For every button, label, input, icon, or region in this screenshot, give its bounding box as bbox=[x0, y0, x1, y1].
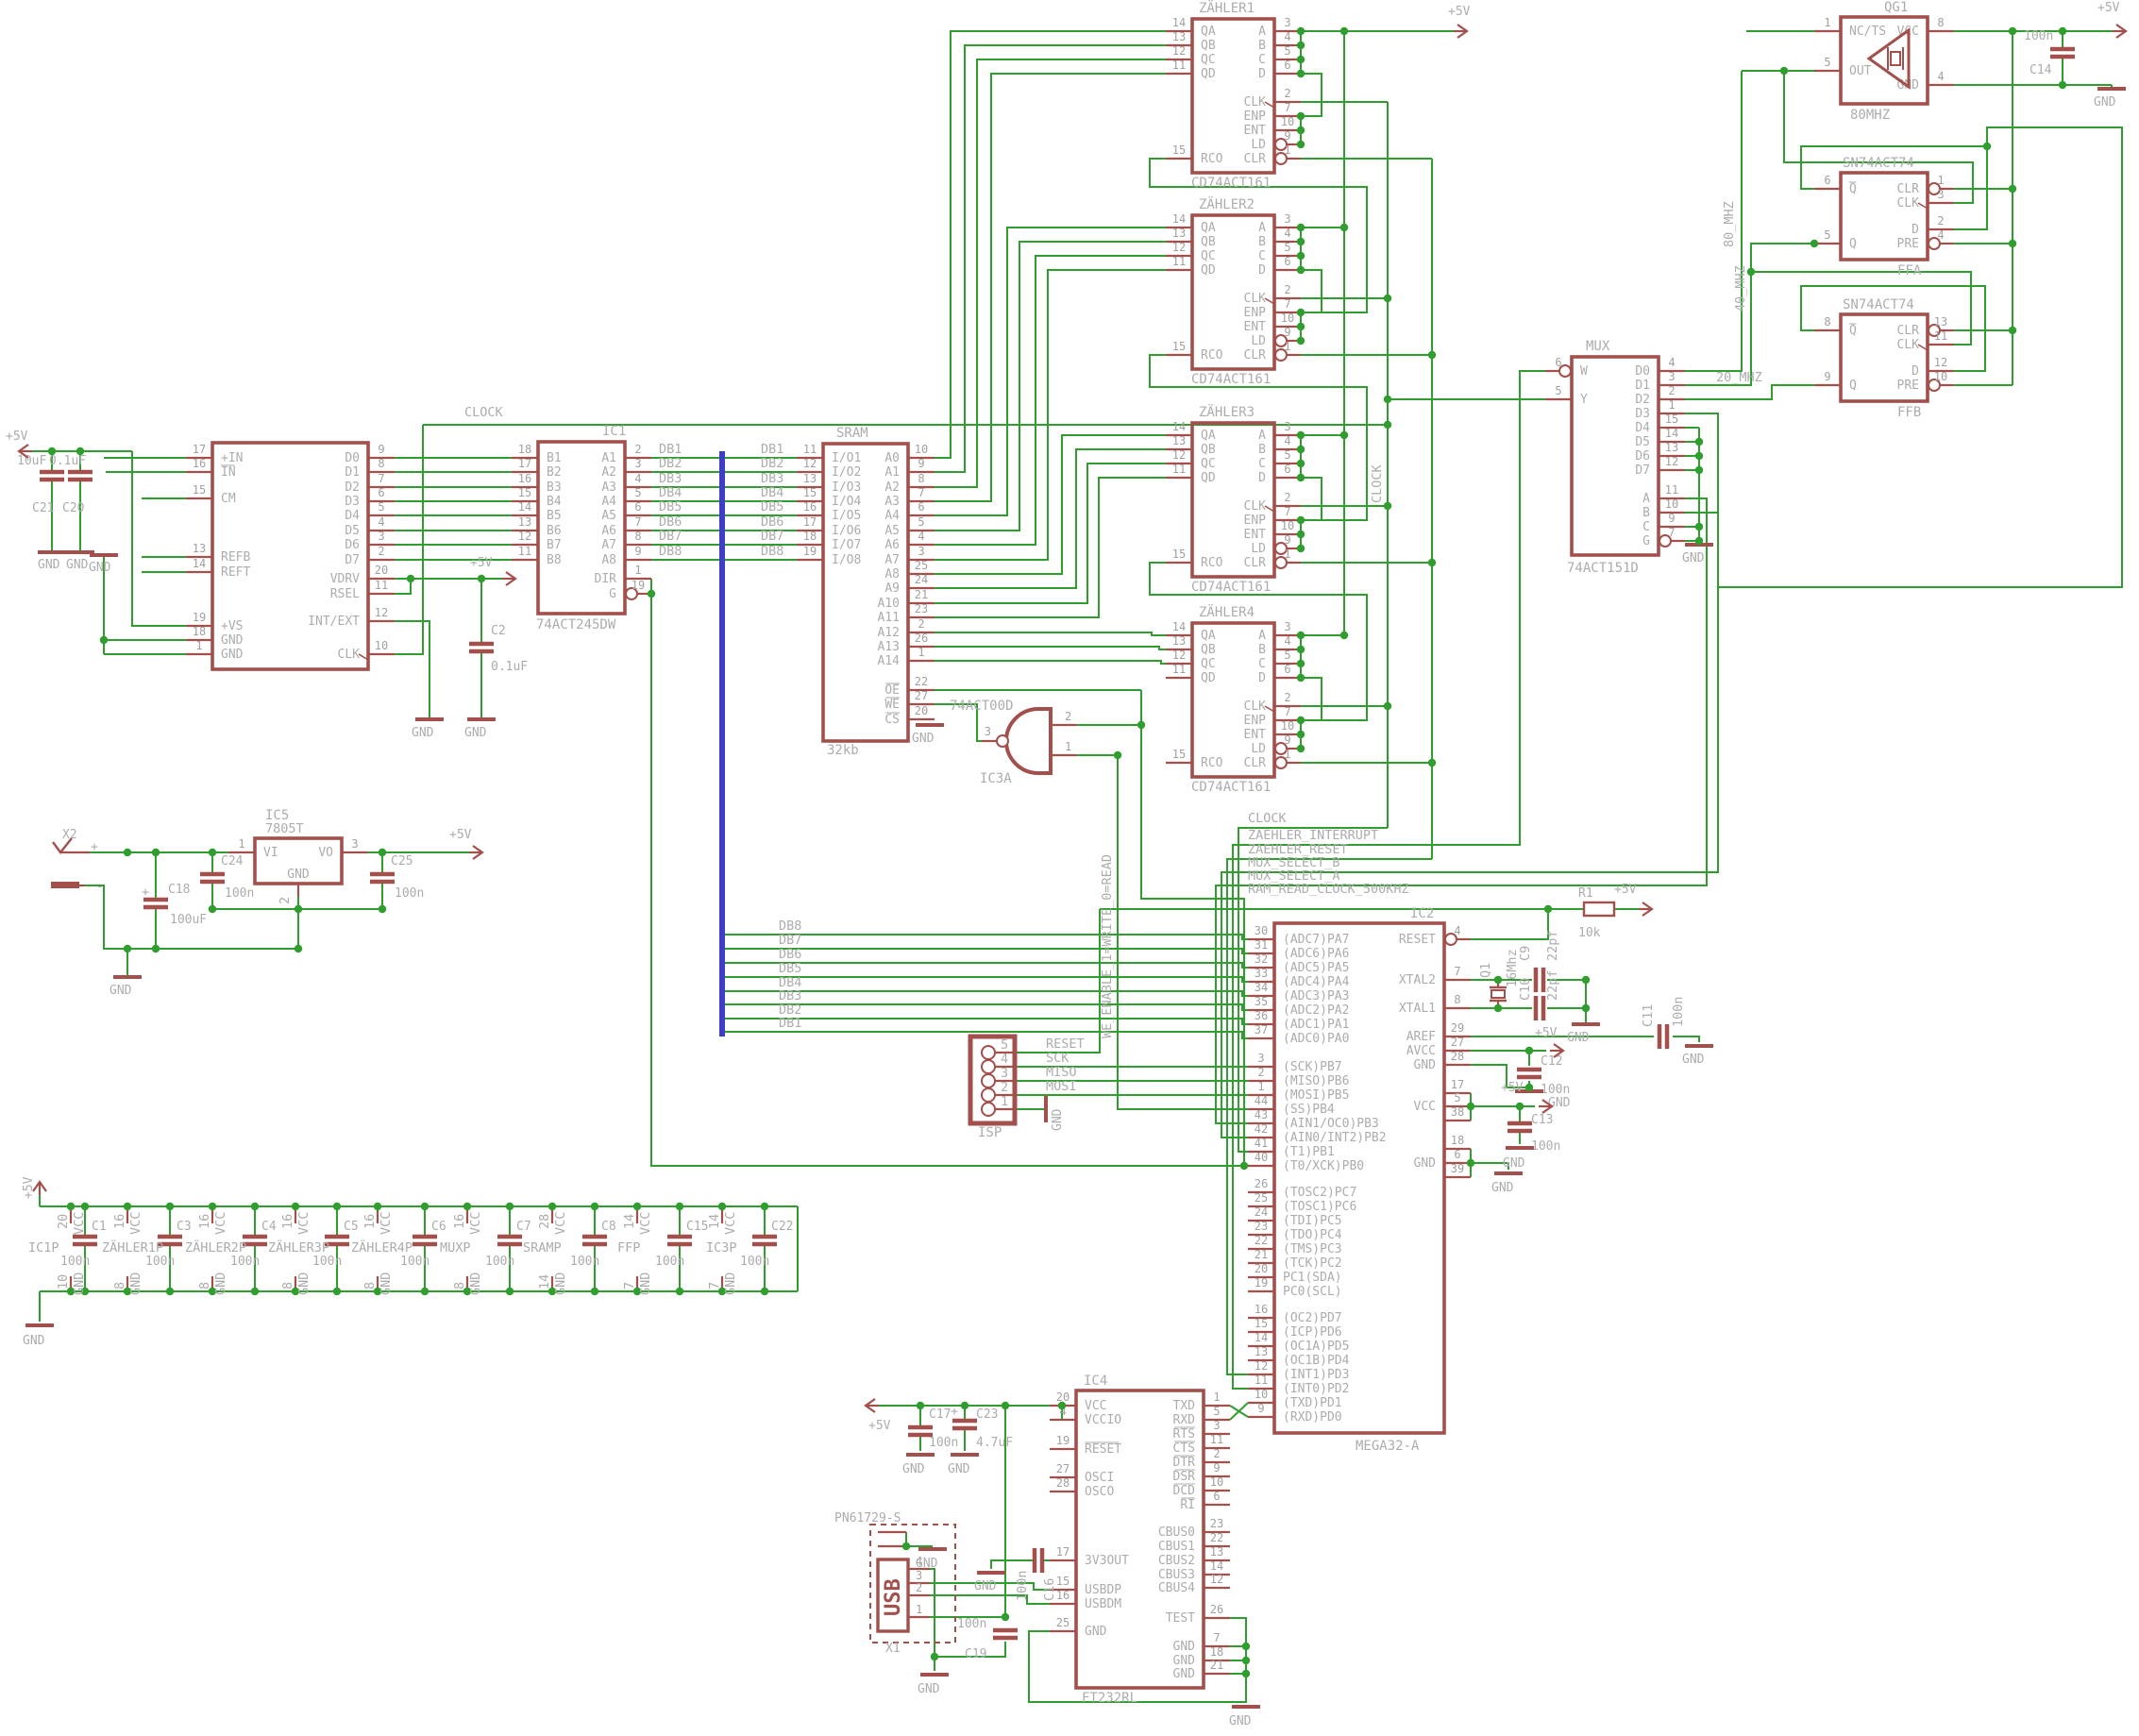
net-label: 7805T bbox=[265, 821, 304, 836]
pin-label: QD bbox=[1201, 67, 1216, 81]
pwr-label: +5V bbox=[6, 430, 28, 444]
pin-label: (ADC5)PA5 bbox=[1283, 961, 1349, 975]
nand-ref: IC3A bbox=[980, 771, 1012, 786]
pin-number: 30 bbox=[1255, 924, 1268, 937]
pin-label: D4 bbox=[1635, 421, 1650, 435]
net-label: DB5 bbox=[659, 499, 682, 514]
junction-dot bbox=[1297, 126, 1305, 134]
pin-number: 4 bbox=[1668, 356, 1675, 369]
pin-label: A5 bbox=[884, 524, 900, 538]
gnd-label: GND bbox=[1229, 1714, 1252, 1728]
net-label: GND bbox=[723, 1273, 738, 1295]
net-label: + bbox=[142, 885, 149, 900]
pin-number: 2 bbox=[1284, 283, 1290, 296]
pin-label: B7 bbox=[547, 538, 562, 552]
ic-title: SN74ACT74 bbox=[1843, 156, 1914, 171]
gnd-symbol: GND bbox=[2094, 89, 2126, 110]
pin-label: CLK bbox=[1244, 95, 1267, 110]
pin-number: 2 bbox=[1284, 491, 1290, 504]
pin-label: RI bbox=[1180, 1498, 1195, 1512]
pin-number: 16 bbox=[803, 500, 817, 514]
pin-number: 10 bbox=[375, 639, 388, 652]
pin-number: 22 bbox=[1255, 1234, 1268, 1247]
pin-label: GND bbox=[221, 633, 244, 648]
pin-number: 6 bbox=[1284, 663, 1290, 676]
pin-number: 18 bbox=[1451, 1134, 1464, 1147]
pin-label: QB bbox=[1201, 643, 1216, 657]
pwr-arrow: +5V bbox=[1614, 883, 1652, 916]
net-label: IC1P bbox=[28, 1240, 59, 1256]
pin-number: 10 bbox=[1281, 312, 1294, 325]
cap-name: C4 bbox=[261, 1220, 277, 1234]
pin-label: RTS bbox=[1173, 1427, 1195, 1441]
pin-label: CLR bbox=[1244, 348, 1267, 362]
pin-number: 13 bbox=[518, 515, 531, 529]
pin-number: 31 bbox=[1255, 938, 1268, 952]
pin-number: 11 bbox=[1172, 59, 1186, 72]
junction-dot bbox=[1297, 460, 1305, 467]
pin-number: 15 bbox=[193, 483, 206, 497]
pwr-label: +5V bbox=[868, 1419, 891, 1433]
junction-dot bbox=[379, 905, 386, 913]
pin-label: (SCK)PB7 bbox=[1283, 1060, 1342, 1074]
junction-dot bbox=[1384, 421, 1391, 429]
cap-value: 100n bbox=[400, 1255, 429, 1269]
pin-label: B bbox=[1258, 39, 1266, 53]
pin-label: D bbox=[1912, 223, 1919, 237]
gnd-symbol: GND bbox=[23, 1325, 54, 1348]
pin-label: QD bbox=[1201, 263, 1216, 278]
pin-number: 21 bbox=[915, 588, 928, 601]
pwr-arrow: +5V bbox=[449, 828, 482, 859]
pin-label: D3 bbox=[1635, 407, 1650, 421]
net-label: VCC bbox=[213, 1212, 228, 1235]
pin-number: 7 bbox=[1284, 297, 1290, 311]
net-label: 22pf bbox=[1545, 930, 1560, 961]
junction-dot bbox=[931, 1653, 938, 1660]
pin-number: 13 bbox=[803, 472, 817, 485]
net-label: 8 bbox=[197, 1282, 212, 1289]
junction-dot bbox=[506, 1288, 514, 1295]
ic-qg1: QG180MHZ1NC/TS5OUT8VCC4GND bbox=[1814, 0, 1954, 123]
junction-dot bbox=[548, 1203, 556, 1210]
pin-number: 6 bbox=[1824, 174, 1830, 187]
cap-name: C6 bbox=[431, 1220, 446, 1234]
pin-label: GND bbox=[1173, 1654, 1196, 1668]
net-label: 1 bbox=[1001, 1094, 1008, 1109]
net-label: ZÄHLER3P bbox=[268, 1239, 329, 1256]
cap-C22: C22100n bbox=[740, 1220, 793, 1269]
pin-number: 3 bbox=[916, 1569, 922, 1582]
pin-label: (MOSI)PB5 bbox=[1283, 1088, 1349, 1103]
cap-C19: C19100n bbox=[957, 1617, 1018, 1661]
junction-dot bbox=[1695, 537, 1703, 545]
junction-dot bbox=[1297, 632, 1305, 639]
net-label: GND bbox=[213, 1273, 228, 1295]
cap-value: 100n bbox=[1541, 1083, 1570, 1097]
pin-label: D6 bbox=[345, 538, 360, 552]
pin-number: 12 bbox=[518, 530, 531, 543]
pin-label: CBUS1 bbox=[1158, 1540, 1195, 1554]
pin-label: I/O2 bbox=[832, 465, 861, 480]
pin-number: 16 bbox=[1255, 1303, 1268, 1316]
pin-number: 12 bbox=[1172, 44, 1186, 58]
junction-dot bbox=[81, 1203, 89, 1210]
net-label: GND bbox=[638, 1273, 653, 1295]
pin-number: 10 bbox=[1210, 1475, 1223, 1489]
wire bbox=[1784, 71, 1973, 203]
gnd-label: GND bbox=[38, 558, 60, 572]
pin-number: 5 bbox=[1824, 56, 1830, 69]
junction-dot bbox=[374, 1203, 381, 1210]
junction-dot bbox=[124, 945, 131, 952]
junction-dot bbox=[292, 1203, 299, 1210]
pin-label: C bbox=[1258, 53, 1266, 67]
gnd-symbol: GND bbox=[902, 1455, 935, 1476]
pin-label: CLK bbox=[1244, 699, 1267, 714]
pin-number: 4 bbox=[1454, 924, 1460, 937]
cap-value: 100n bbox=[740, 1255, 769, 1269]
cap-value: 100n bbox=[145, 1255, 175, 1269]
pin-number: 8 bbox=[378, 457, 384, 470]
net-label: DB6 bbox=[659, 514, 682, 530]
pin-number: 5 bbox=[1555, 384, 1561, 397]
junction-dot bbox=[1242, 1643, 1250, 1650]
junction-dot bbox=[1297, 531, 1305, 538]
cap-name: C19 bbox=[965, 1647, 986, 1661]
junction-dot bbox=[1242, 1670, 1250, 1677]
cap-C25: C25100n bbox=[370, 854, 424, 901]
pin-number: 1 bbox=[1284, 548, 1290, 561]
net-label: C16 bbox=[1042, 1578, 1057, 1601]
pwr-label: +5V bbox=[1501, 1081, 1524, 1095]
pin-label: D5 bbox=[345, 524, 360, 538]
pin-number: 11 bbox=[803, 443, 817, 456]
pin-label: D bbox=[1258, 471, 1266, 485]
junction-dot bbox=[1747, 268, 1755, 276]
pin-label: D2 bbox=[1635, 393, 1650, 407]
cap-name: C20 bbox=[62, 501, 84, 515]
pin-label: (MISO)PB6 bbox=[1283, 1074, 1349, 1088]
cap-C16 bbox=[1035, 1548, 1042, 1573]
junction-dot bbox=[761, 1203, 768, 1210]
junction-dot bbox=[1516, 1103, 1524, 1110]
ic-ffb: SN74ACT74FFB8Q9Q13CLR11CLK12D10PRE bbox=[1814, 297, 1954, 420]
pin-number: 2 bbox=[1257, 1066, 1264, 1079]
pin-number: 14 bbox=[1255, 1331, 1268, 1344]
nand-ic3a: 74ACT00DIC3A321 bbox=[950, 699, 1077, 786]
junction-dot bbox=[1297, 309, 1305, 316]
pin-label: LD bbox=[1251, 542, 1266, 556]
pin-number: 15 bbox=[1172, 143, 1186, 157]
junction-dot bbox=[1297, 42, 1305, 49]
net-label: VCC bbox=[468, 1212, 483, 1235]
net-label: CLOCK bbox=[464, 405, 504, 420]
pin-number: 3 bbox=[1284, 212, 1290, 226]
pin-number: 19 bbox=[632, 579, 645, 592]
wire bbox=[395, 425, 423, 654]
cap-name: C2 bbox=[491, 624, 506, 638]
pin-label: USBDP bbox=[1085, 1583, 1121, 1597]
pin-label: IN bbox=[221, 465, 236, 480]
pin-label: GND bbox=[1414, 1156, 1437, 1171]
ic-subtitle: 74ACT245DW bbox=[536, 617, 616, 632]
pin-label: B bbox=[1258, 235, 1266, 249]
pin-number: 12 bbox=[375, 606, 388, 619]
pin-label: I/O6 bbox=[832, 524, 861, 538]
pin-label: LD bbox=[1251, 334, 1266, 348]
junction-dot bbox=[961, 1402, 968, 1409]
pin-number: 7 bbox=[918, 486, 924, 499]
pin-number: 6 bbox=[1284, 463, 1290, 476]
dc-jack: X2+- bbox=[51, 828, 104, 894]
pin-number: 13 bbox=[1172, 634, 1186, 648]
pin-label: (ADC0)PA0 bbox=[1283, 1032, 1349, 1046]
ic-title: ZÄHLER3 bbox=[1199, 403, 1255, 420]
pin-number: 16 bbox=[193, 457, 206, 470]
pin-label: WE bbox=[884, 698, 900, 712]
pin-number: 4 bbox=[378, 515, 384, 529]
pin-number: 15 bbox=[1056, 1575, 1069, 1588]
pin-number: 13 bbox=[1665, 441, 1678, 454]
pin-number: 5 bbox=[1454, 1091, 1460, 1104]
pin-label: D0 bbox=[345, 451, 360, 465]
net-labels: CLOCKCLOCKDB1DB2DB3DB4DB5DB6DB7DB8DB1DB2… bbox=[28, 201, 1762, 1601]
pin-number: 11 bbox=[518, 545, 531, 558]
junction-dot bbox=[1297, 674, 1305, 682]
pin-number: 25 bbox=[915, 559, 928, 572]
pin-number: 3 bbox=[1937, 188, 1944, 201]
net-label: 20_MHZ bbox=[1716, 370, 1762, 385]
pin-number: 5 bbox=[1824, 228, 1830, 242]
wire bbox=[1230, 1403, 1248, 1420]
junction-dot bbox=[676, 1203, 683, 1210]
gnd-label: GND bbox=[948, 1462, 970, 1476]
gnd-symbol: GND bbox=[912, 725, 944, 746]
pin-label: (ADC2)PA2 bbox=[1283, 1003, 1349, 1018]
ic-title: SRAM bbox=[836, 426, 868, 441]
cap-name: C24 bbox=[221, 854, 244, 868]
pin-label: Q bbox=[1849, 379, 1857, 393]
cap-value: 0.1uF bbox=[491, 660, 528, 674]
pin-label: GND bbox=[1414, 1058, 1437, 1072]
pin-label: (ADC1)PA1 bbox=[1283, 1018, 1349, 1032]
pin-number: 35 bbox=[1255, 995, 1268, 1008]
schematic-canvas: 17+IN16IN15CM13REFB14REFT19+VS18GND1GND9… bbox=[0, 0, 2139, 1736]
pin-number: 9 bbox=[1284, 326, 1290, 339]
pin-number: 13 bbox=[1210, 1545, 1223, 1559]
pin-number: 2 bbox=[1668, 384, 1675, 397]
net-label: DB5 bbox=[779, 961, 801, 976]
pin-label: B bbox=[1258, 643, 1266, 657]
pin-label: (ADC7)PA7 bbox=[1283, 933, 1349, 947]
junction-dot bbox=[1002, 1402, 1009, 1409]
pin-number: 3 bbox=[1284, 420, 1290, 433]
junction-dot bbox=[124, 1203, 131, 1210]
net-label: IC3P bbox=[706, 1240, 737, 1256]
net-label: 8 bbox=[452, 1282, 467, 1289]
wire bbox=[1301, 678, 1322, 720]
net-label: RAM_READ_CLOCK_500KHZ bbox=[1248, 882, 1409, 897]
pin-label: RCO bbox=[1201, 756, 1223, 770]
pin-number: 27 bbox=[915, 689, 928, 702]
junction-dot bbox=[1340, 632, 1348, 639]
wire bbox=[935, 463, 1166, 603]
ic-title: MUX bbox=[1586, 339, 1610, 354]
pin-label: A2 bbox=[601, 465, 616, 480]
pin-label: A4 bbox=[884, 509, 900, 523]
pin-number: 1 bbox=[916, 1603, 922, 1616]
junction-dot bbox=[1297, 112, 1305, 120]
wires bbox=[19, 31, 2122, 1703]
pin-number: 1 bbox=[1284, 340, 1290, 353]
junction-dot bbox=[76, 447, 84, 455]
pin-number: 26 bbox=[915, 632, 928, 645]
junction-dot bbox=[421, 1288, 429, 1295]
pin-label: CBUS2 bbox=[1158, 1554, 1195, 1568]
junction-dot bbox=[1240, 1162, 1248, 1170]
pin-label: QB bbox=[1201, 235, 1216, 249]
pin-number: 44 bbox=[1255, 1094, 1268, 1107]
pin-label: CLK bbox=[1244, 292, 1267, 306]
junction-dot bbox=[1297, 252, 1305, 260]
pin-label: A2 bbox=[884, 480, 900, 495]
pin-number: 3 bbox=[1257, 1052, 1264, 1065]
gnd-symbol: GND bbox=[412, 719, 444, 740]
junction-dot bbox=[1340, 27, 1348, 35]
junction-dot bbox=[166, 1288, 174, 1295]
pin-label: D1 bbox=[345, 465, 360, 480]
pin-number: 12 bbox=[1934, 356, 1947, 369]
wire bbox=[132, 451, 186, 626]
pin-number: 17 bbox=[803, 515, 817, 529]
pin-number: 2 bbox=[378, 545, 384, 558]
pin-label: D0 bbox=[1635, 364, 1650, 379]
junction-dot bbox=[1297, 56, 1305, 63]
pin-label: (ADC4)PA4 bbox=[1283, 975, 1350, 989]
net-label: ZÄHLER1P bbox=[102, 1239, 163, 1256]
junction-dot bbox=[463, 1203, 471, 1210]
pin-number: 34 bbox=[1255, 981, 1268, 994]
net-label: DB3 bbox=[761, 471, 783, 486]
pin-label: (SS)PB4 bbox=[1283, 1103, 1335, 1117]
cap-value: 100n bbox=[312, 1255, 342, 1269]
ic-title: ZÄHLER1 bbox=[1199, 0, 1255, 16]
junction-dot bbox=[1297, 745, 1305, 752]
net-label: DB3 bbox=[779, 988, 801, 1003]
pin-label: (OC1B)PD4 bbox=[1283, 1354, 1350, 1368]
net-label: DB4 bbox=[659, 485, 682, 500]
pin-number: 20 bbox=[915, 704, 928, 717]
junction-dot bbox=[1297, 545, 1305, 552]
cap-name: C18 bbox=[168, 883, 190, 897]
net-label: 16 bbox=[280, 1214, 295, 1229]
pin-number: 11 bbox=[1255, 1374, 1268, 1387]
junction-dot bbox=[1297, 141, 1305, 148]
pin-label: CLR bbox=[1244, 556, 1267, 570]
pin-number: 17 bbox=[1056, 1545, 1069, 1559]
pin-number: 4 bbox=[1284, 634, 1290, 648]
net-label: GND bbox=[296, 1273, 312, 1295]
pin-label: INT/EXT bbox=[308, 615, 360, 629]
cap-value: 0.1uF bbox=[49, 454, 86, 468]
pin-number: 33 bbox=[1255, 967, 1268, 980]
pwr-arrow: +5V bbox=[2097, 1, 2126, 38]
pin-number: 3 bbox=[1668, 370, 1675, 383]
ic-subtitle: 80MHZ bbox=[1850, 108, 1890, 123]
pin-number: 5 bbox=[1213, 1405, 1220, 1418]
wire bbox=[935, 647, 1166, 649]
wire bbox=[935, 478, 1166, 617]
junction-dot bbox=[1544, 905, 1552, 913]
pin-number: 15 bbox=[518, 486, 531, 499]
pwr-label: +5V bbox=[1614, 883, 1637, 897]
pin-number: 20 bbox=[375, 564, 388, 577]
pin-label: QC bbox=[1201, 249, 1216, 263]
pin-number: 3 bbox=[1213, 1419, 1220, 1432]
jack-ref: X2 bbox=[62, 828, 77, 842]
cap-value: 100n bbox=[570, 1255, 599, 1269]
pin-label: A3 bbox=[884, 495, 900, 509]
junction-dot bbox=[251, 1288, 259, 1295]
pin-number: 9 bbox=[378, 443, 384, 456]
pin-label: DSR bbox=[1173, 1470, 1196, 1484]
pin-label: I/O8 bbox=[832, 553, 861, 567]
pin-number: 6 bbox=[918, 500, 924, 514]
pin-label: D1 bbox=[1635, 379, 1650, 393]
pin-label: QA bbox=[1201, 629, 1216, 643]
pin-number: 4 bbox=[1937, 228, 1944, 242]
pin-number: 7 bbox=[1284, 505, 1290, 518]
cap-value: 100n bbox=[929, 1436, 958, 1450]
pin-number: 7 bbox=[1213, 1631, 1220, 1644]
pin-label: A bbox=[1258, 629, 1266, 643]
ic-ffa: SN74ACT74FFA6Q5Q1CLR3CLK2D4PRE bbox=[1814, 156, 1954, 278]
junction-dot bbox=[1297, 660, 1305, 667]
net-label: FFP bbox=[617, 1240, 640, 1256]
ic-mux: MUX74ACT151D6W5Y4D03D12D21D315D414D513D6… bbox=[1545, 339, 1685, 576]
pin-number: 14 bbox=[1172, 620, 1186, 633]
pin-number: 4 bbox=[1284, 30, 1290, 43]
pin-label: QA bbox=[1201, 221, 1216, 235]
junction-dot bbox=[1297, 431, 1305, 439]
pin-label: ENT bbox=[1244, 124, 1267, 138]
pin-label: DIR bbox=[595, 572, 617, 586]
crystal-glyph bbox=[1891, 52, 1900, 65]
junction-dot bbox=[1428, 351, 1436, 359]
cap-name: C23 bbox=[976, 1407, 998, 1422]
junction-dot bbox=[1297, 238, 1305, 245]
ic-ic4: IC4FT232RL20VCC4VCCIO19RESET27OSCI28OSCO… bbox=[1050, 1374, 1230, 1706]
gnd-label: GND bbox=[1491, 1181, 1514, 1195]
pin-number: 37 bbox=[1255, 1023, 1268, 1037]
pin-number: 14 bbox=[1172, 420, 1186, 433]
part-name: R1 bbox=[1578, 886, 1593, 901]
pin-number: 28 bbox=[1056, 1476, 1069, 1490]
net-label: 10 bbox=[56, 1274, 71, 1289]
pin-label: REFB bbox=[221, 550, 250, 565]
pin-label: Q bbox=[1849, 237, 1857, 251]
cap-value: 100n bbox=[230, 1255, 260, 1269]
cap-name: C15 bbox=[686, 1220, 708, 1234]
pin-number: 5 bbox=[1284, 649, 1290, 662]
pin-label: B bbox=[1642, 506, 1650, 520]
resistor-body bbox=[1584, 902, 1614, 916]
net-label: SRAMP bbox=[523, 1240, 562, 1256]
pin-number: 42 bbox=[1255, 1122, 1268, 1136]
gnd-label: GND bbox=[912, 732, 935, 746]
pin-number: 5 bbox=[1284, 448, 1290, 462]
